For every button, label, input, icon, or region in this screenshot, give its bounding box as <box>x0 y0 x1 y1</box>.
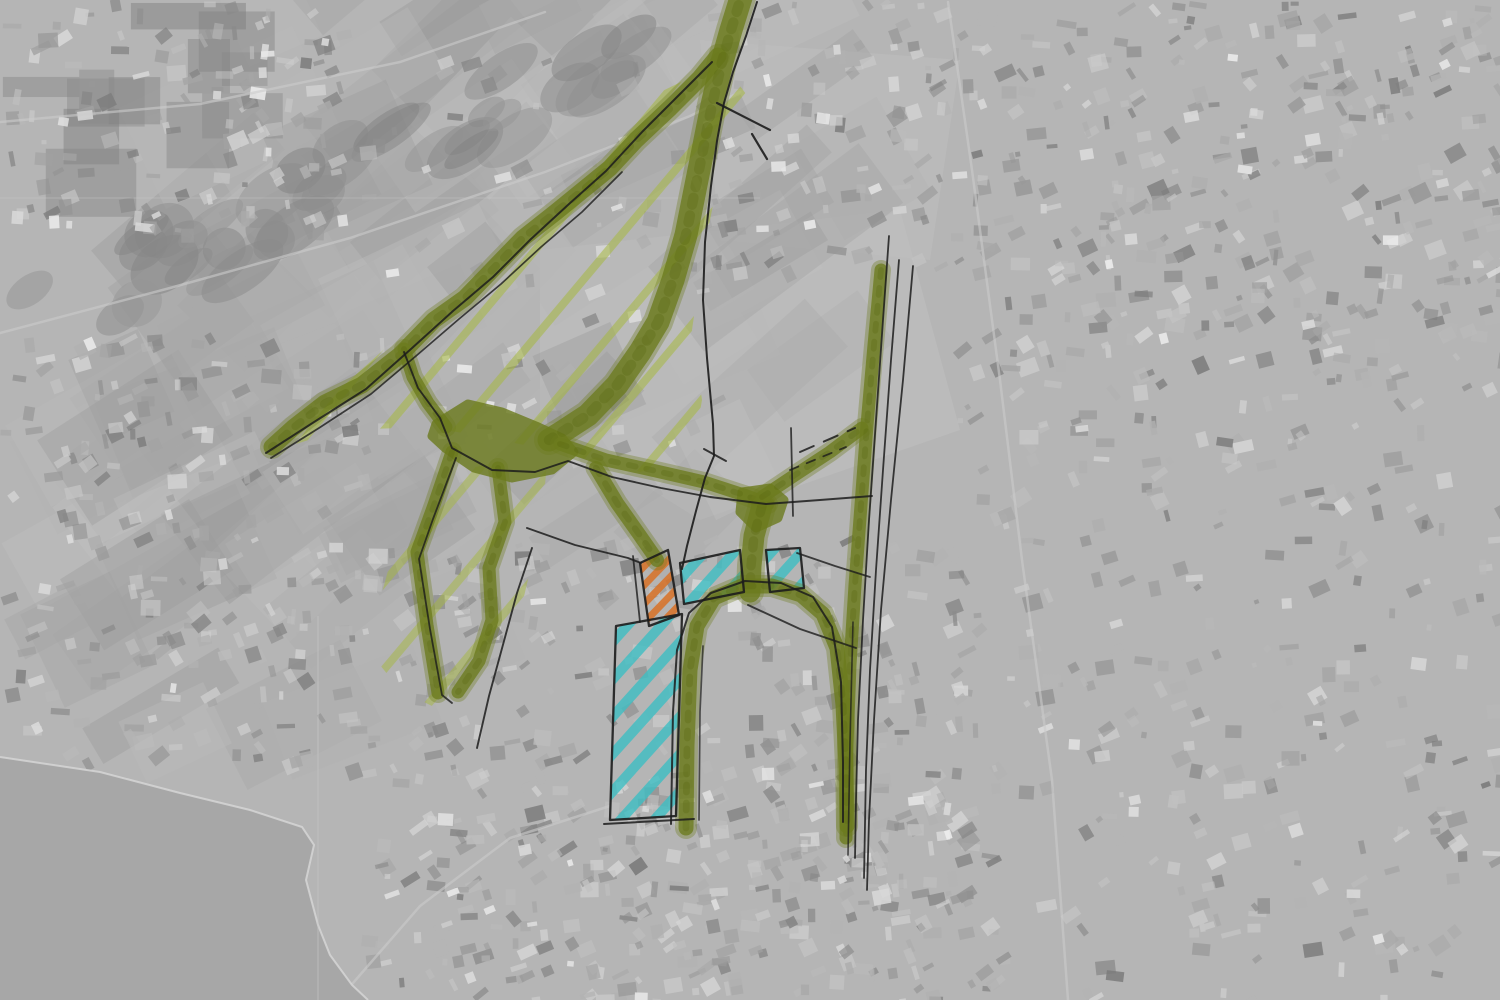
planning-sketch-map <box>0 0 1500 1000</box>
sketch-map-canvas <box>0 0 1500 1000</box>
